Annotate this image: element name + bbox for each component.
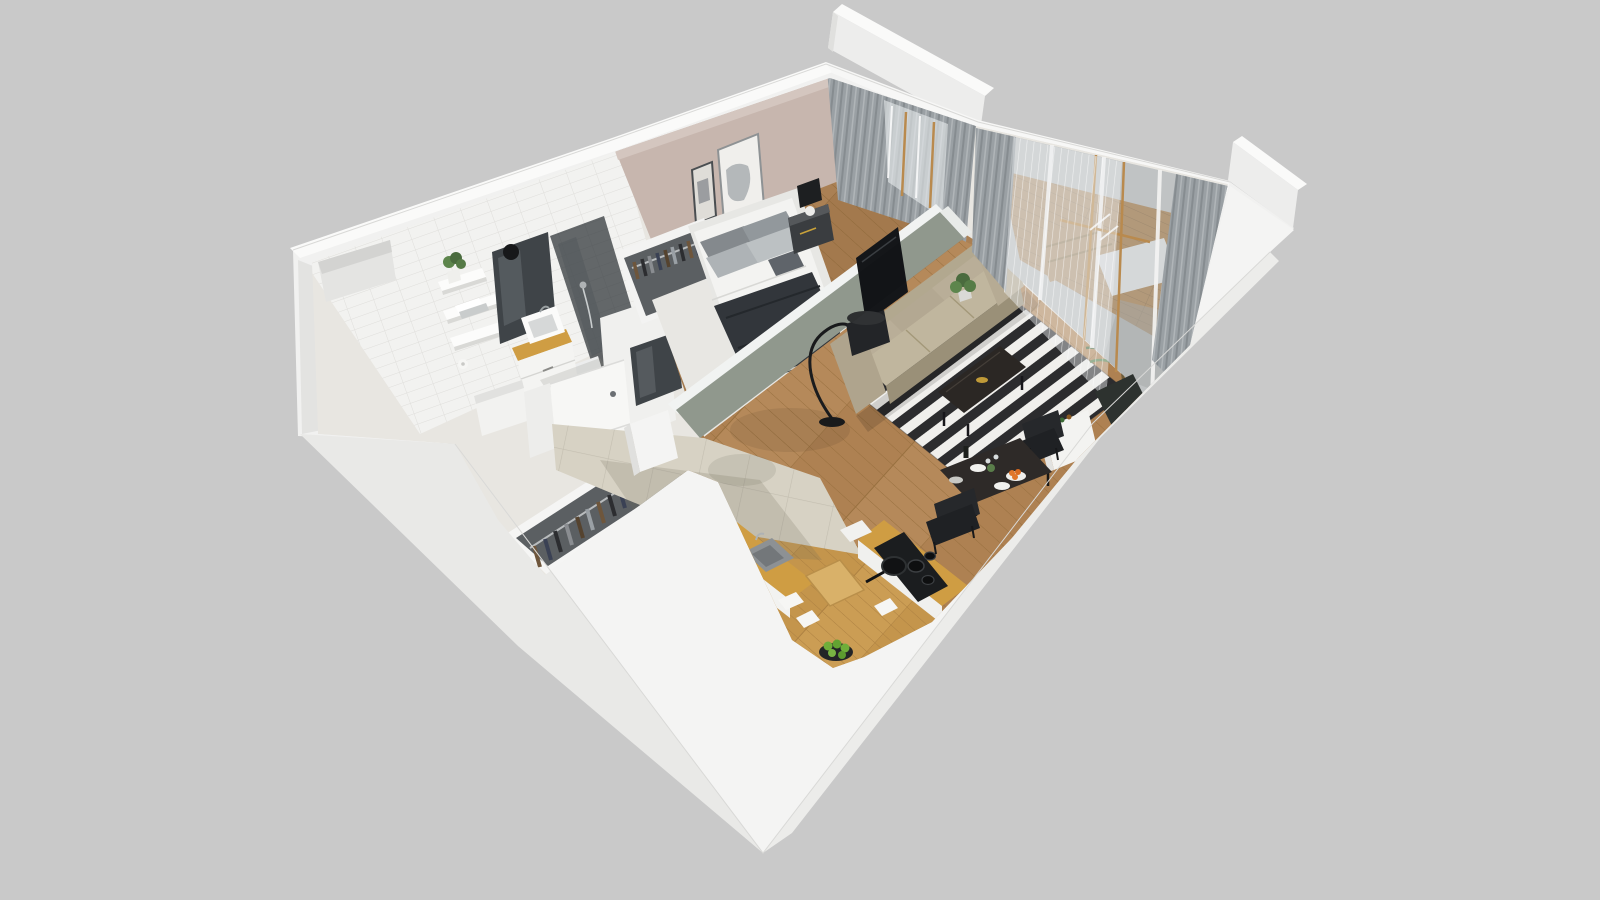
toilet-paper-holder (458, 359, 468, 369)
plate (970, 464, 986, 472)
floorplan-stage (0, 0, 1600, 900)
door-handle (610, 391, 616, 397)
brass-bowl (976, 377, 988, 383)
plate (994, 482, 1010, 490)
floorplan-render (0, 0, 1600, 900)
wall-sconce (503, 244, 519, 260)
